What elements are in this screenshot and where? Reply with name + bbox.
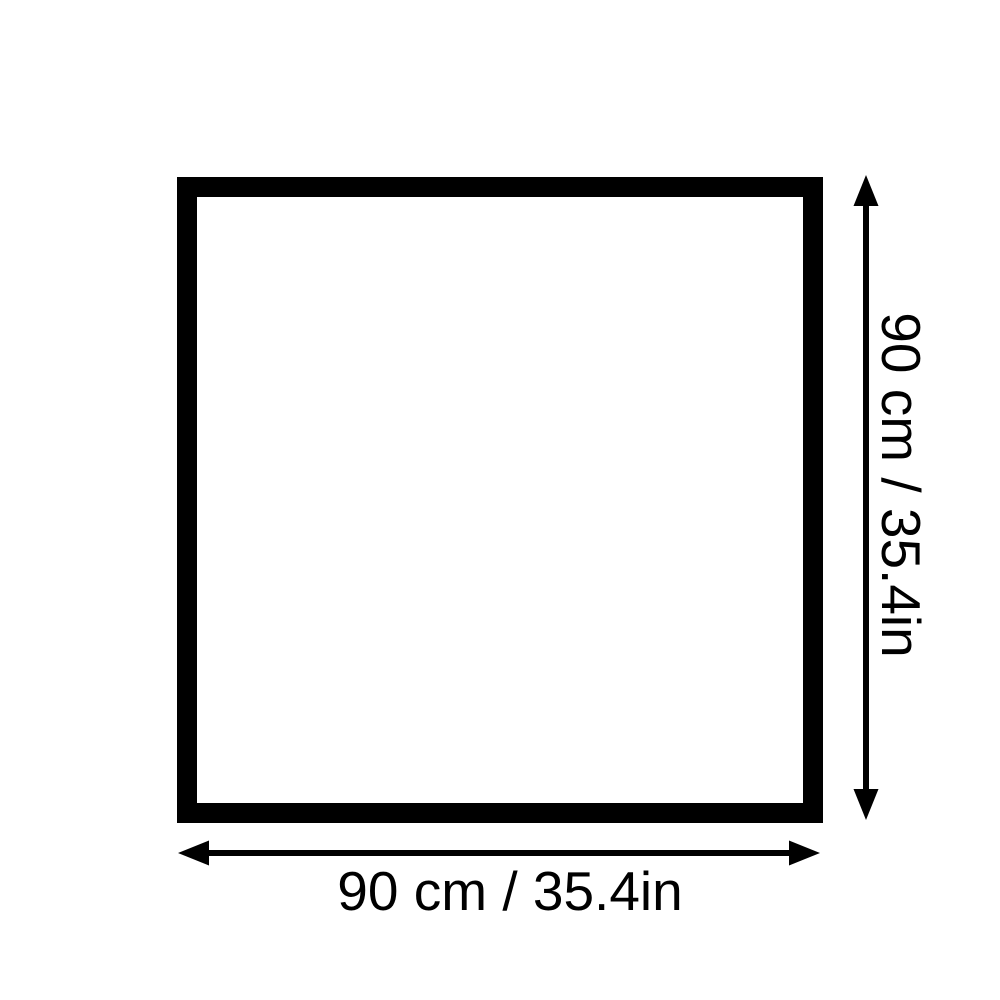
width-dimension-label: 90 cm / 35.4in xyxy=(210,861,810,921)
product-outline-square xyxy=(177,177,823,823)
dimension-diagram: 90 cm / 35.4in 90 cm / 35.4in xyxy=(0,0,1000,1000)
height-dimension-label: 90 cm / 35.4in xyxy=(871,185,931,785)
